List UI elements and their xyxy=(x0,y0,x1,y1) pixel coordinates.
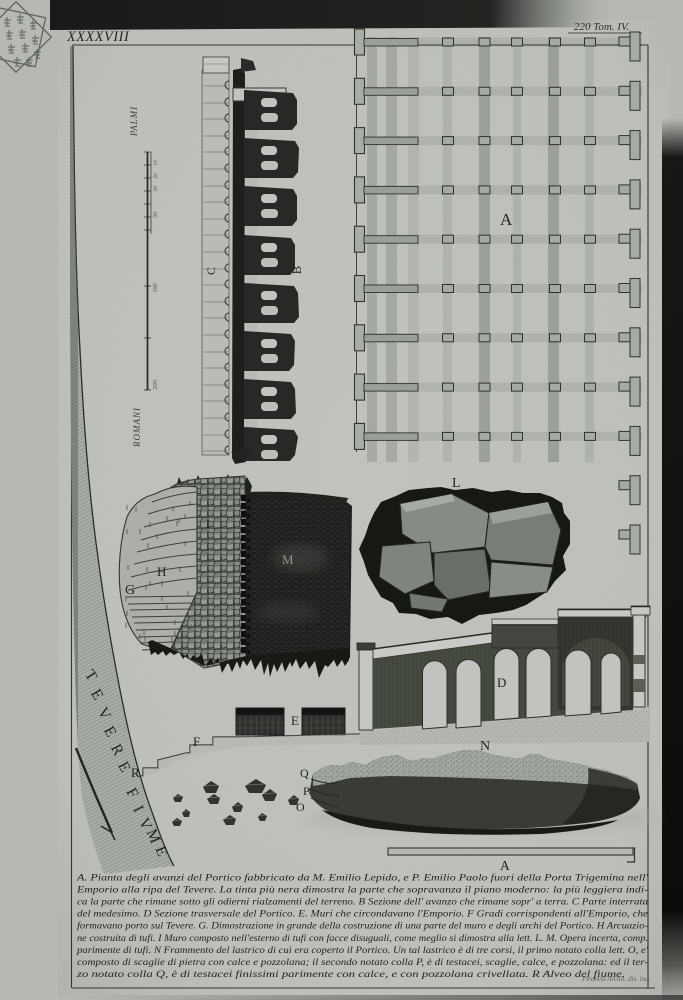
svg-text:PALMI: PALMI xyxy=(129,106,139,137)
svg-text:Q: Q xyxy=(300,766,309,780)
svg-text:H: H xyxy=(157,564,166,579)
svg-text:A. Pianta degli avanzi del Por: A. Pianta degli avanzi del Portico fabbr… xyxy=(76,873,650,884)
svg-text:parimente di tufi. N Frammento: parimente di tufi. N Frammento del lastr… xyxy=(76,945,649,956)
svg-text:ca la parte che rimane sotto g: ca la parte che rimane sotto gli odierni… xyxy=(77,898,648,908)
svg-text:formavano porto sul Tevere. G.: formavano porto sul Tevere. G. Dimostraz… xyxy=(77,921,648,932)
svg-text:30: 30 xyxy=(153,186,159,193)
svg-text:50: 50 xyxy=(153,212,159,218)
svg-text:F: F xyxy=(193,734,200,749)
svg-text:220 Tom. IV.: 220 Tom. IV. xyxy=(574,21,629,33)
svg-text:100: 100 xyxy=(153,284,159,293)
svg-text:M: M xyxy=(282,552,294,567)
svg-text:10: 10 xyxy=(153,160,159,166)
svg-text:O: O xyxy=(296,800,305,814)
svg-text:XXXXVIII: XXXXVIII xyxy=(66,29,130,45)
svg-text:20: 20 xyxy=(153,173,159,179)
svg-text:P: P xyxy=(303,784,310,798)
svg-text:I: I xyxy=(206,517,210,531)
svg-text:C: C xyxy=(204,267,218,275)
svg-text:ROMANI: ROMANI xyxy=(132,407,142,448)
svg-text:del medesimo. D Sezione trasve: del medesimo. D Sezione trasversale del … xyxy=(77,910,648,920)
svg-text:D: D xyxy=(497,675,506,690)
svg-text:zo notato colla Q, è di testac: zo notato colla Q, è di testacei finissi… xyxy=(76,969,625,980)
svg-text:N: N xyxy=(480,739,490,754)
svg-text:R: R xyxy=(131,765,140,780)
svg-text:Piranesi Archit. dis. inc.: Piranesi Archit. dis. inc. xyxy=(581,975,650,983)
svg-text:B: B xyxy=(289,265,304,274)
svg-text:E: E xyxy=(291,713,299,728)
svg-text:ne costruita di tufi. I Muro c: ne costruita di tufi. I Muro composto ne… xyxy=(77,933,648,944)
svg-text:200: 200 xyxy=(152,379,159,390)
svg-text:composto di scaglie di pietra: composto di scaglie di pietra con calce … xyxy=(77,958,648,968)
svg-text:A: A xyxy=(500,858,510,873)
svg-text:A: A xyxy=(500,210,513,229)
svg-text:G: G xyxy=(125,583,135,598)
svg-text:L: L xyxy=(452,476,461,491)
svg-text:Emporio alla ripa del Tevere.: Emporio alla ripa del Tevere. La tinta p… xyxy=(76,886,648,896)
